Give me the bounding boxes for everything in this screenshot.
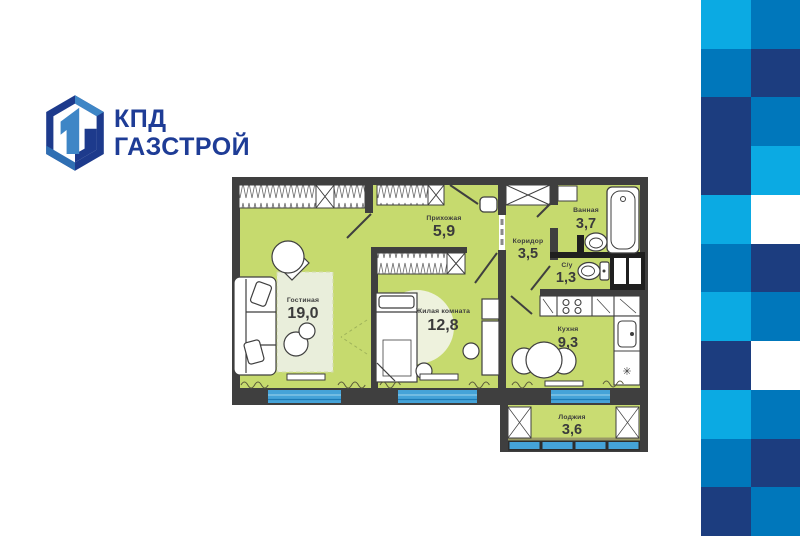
wardrobe-x-box [506,185,550,205]
loggia-cabinet-x-box [616,407,639,438]
pattern-square [751,146,800,195]
wall-opening [499,215,505,250]
svg-text:Жилая комната: Жилая комната [415,308,470,315]
bed [376,293,417,382]
svg-text:Кухня: Кухня [558,326,579,333]
kitchen-window [551,390,610,403]
svg-text:Прихожая: Прихожая [426,215,461,222]
pattern-grid [701,0,800,536]
pattern-square [751,390,800,439]
bedroom-window [398,390,477,403]
entry-door-leaf [480,197,497,212]
pattern-square [751,195,800,244]
desk-chair [463,343,479,359]
pattern-square [751,49,800,98]
wardrobe-x-box [316,185,334,208]
wardrobe-hatched [377,253,447,274]
wardrobe-x-box [447,253,465,274]
pattern-square [751,439,800,488]
pattern-square [701,97,751,146]
pattern-square [701,146,751,195]
svg-text:1,3: 1,3 [556,270,576,286]
windows [268,390,610,403]
pattern-square [751,0,800,49]
pattern-square [751,292,800,341]
toilet [578,262,609,280]
sofa [234,277,276,375]
pattern-square [701,487,751,536]
fridge-snowflake-icon: ✳ [622,366,631,378]
pattern-square [701,0,751,49]
svg-text:19,0: 19,0 [287,305,318,322]
svg-text:3,5: 3,5 [518,246,538,262]
bathroom-sink [585,233,607,251]
pattern-square [751,97,800,146]
living-room-window [268,390,341,403]
room-label-bathroom: Ванная 3,7 [573,207,599,232]
loggia-glazing [508,438,640,451]
wardrobe-x-box [428,185,444,205]
wardrobe-hatched [377,185,428,205]
pattern-square [701,341,751,390]
bathtub [607,187,639,253]
page: КПД ГАЗСТРОЙ [0,0,800,536]
svg-text:Гостиная: Гостиная [287,297,319,304]
svg-text:С/у: С/у [561,262,572,269]
svg-text:Лоджия: Лоджия [558,414,585,421]
floor-plan: ✳ [0,0,800,536]
washing-machine [558,186,577,201]
kitchen-counter [540,296,640,316]
pattern-square [701,244,751,293]
svg-text:3,7: 3,7 [576,216,596,232]
svg-text:9,3: 9,3 [558,335,578,351]
pattern-square [701,49,751,98]
room-label-loggia: Лоджия 3,6 [558,414,585,438]
wardrobe-hatched [239,185,316,208]
room-label-living: Гостиная 19,0 [287,297,319,322]
svg-text:3,6: 3,6 [562,422,582,438]
svg-text:Коридор: Коридор [513,238,544,245]
living-room-rug [277,272,333,372]
svg-text:5,9: 5,9 [433,223,455,240]
room-label-kitchen: Кухня 9,3 [558,326,579,351]
pattern-square [701,439,751,488]
wardrobe-hatched [334,185,365,208]
pattern-square [701,390,751,439]
loggia-cabinet-x-box [508,407,531,438]
svg-text:12,8: 12,8 [427,317,458,334]
pattern-square [701,195,751,244]
pattern-square [751,341,800,390]
pattern-square [701,292,751,341]
pattern-square [751,487,800,536]
svg-text:Ванная: Ванная [573,207,599,214]
pattern-square [751,244,800,293]
